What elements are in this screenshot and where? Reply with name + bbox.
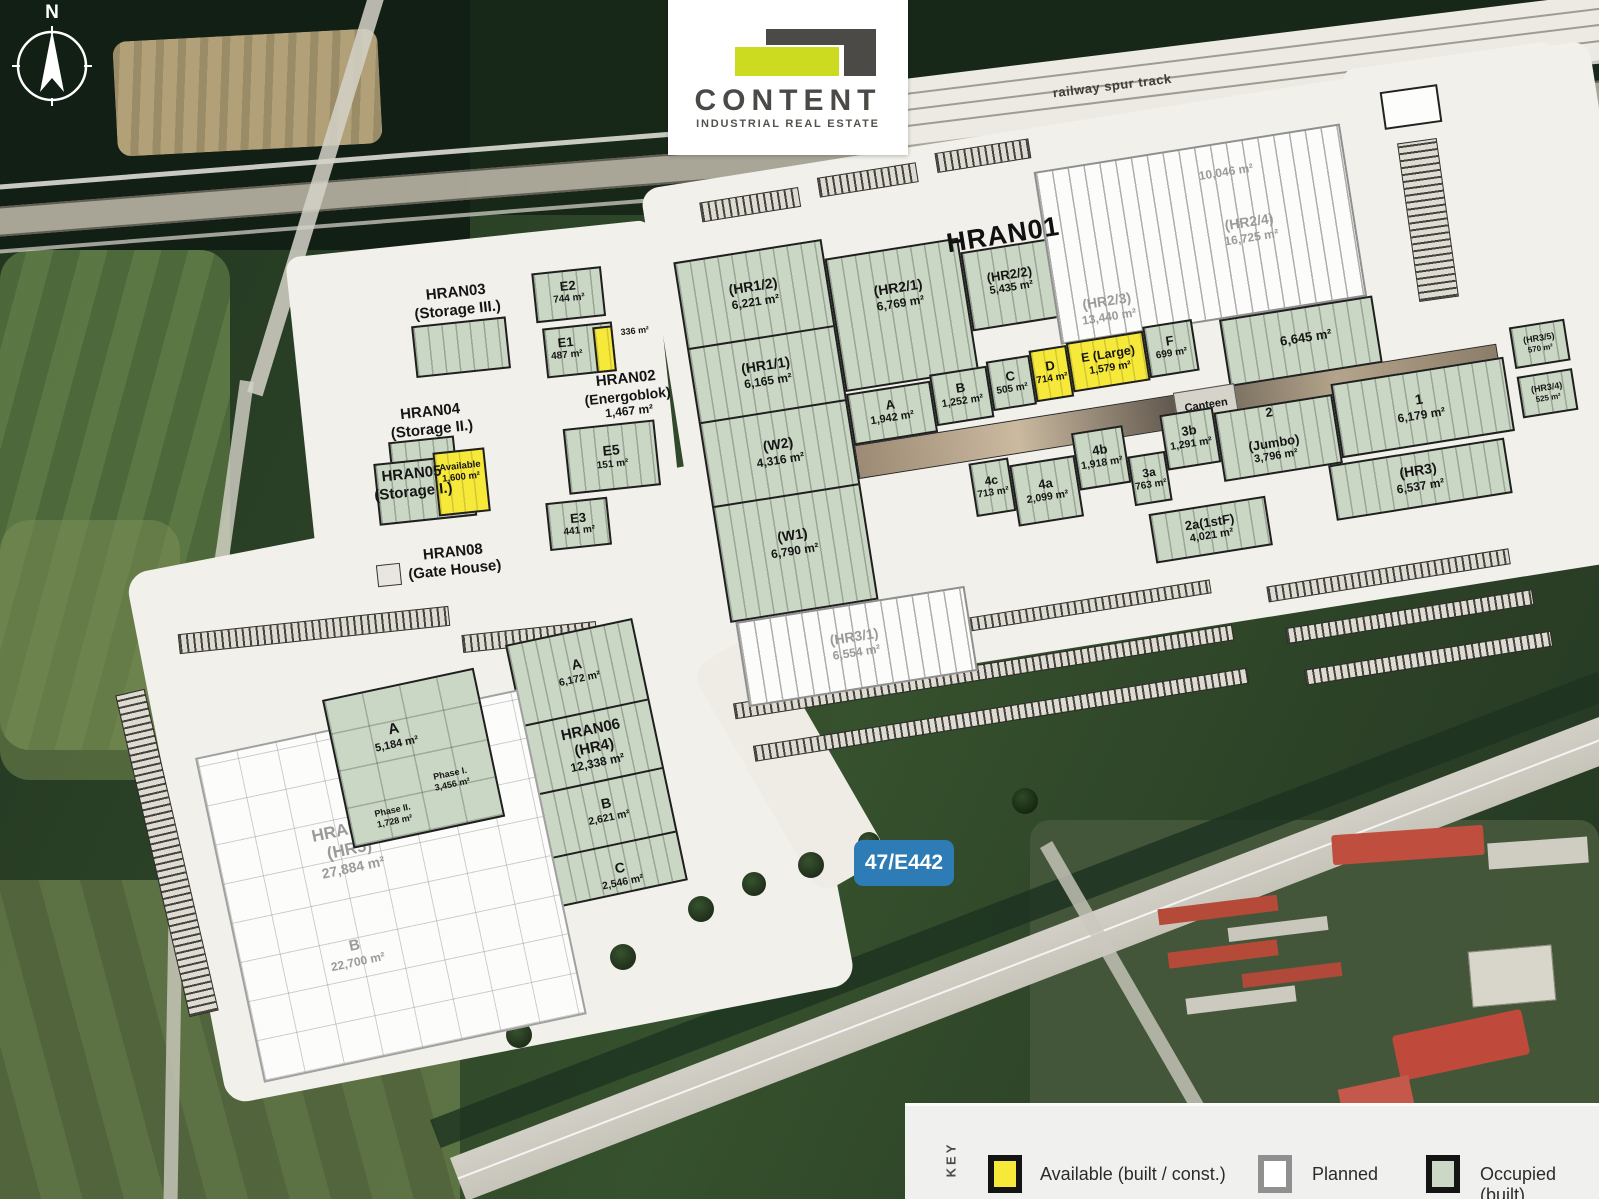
e2-label: E2744 m² [551, 277, 585, 307]
hran03-label: HRAN03(Storage III.) [412, 279, 502, 323]
hran06-a-label: A6,172 m² [554, 652, 601, 689]
legend-label-available: Available (built / const.) [1040, 1164, 1226, 1185]
hall-divider [552, 831, 676, 859]
hall-divider [701, 399, 846, 424]
unit-label-f: F699 m² [1153, 331, 1189, 363]
legend-swatch-occupied [1426, 1155, 1460, 1193]
legend-label-planned: Planned [1312, 1164, 1378, 1185]
hall-divider [539, 767, 663, 795]
e1-label: E1487 m² [549, 333, 583, 363]
e5-label: E5151 m² [595, 440, 629, 471]
parking-row [1266, 548, 1510, 602]
logo-mark-accent [735, 47, 839, 76]
parking-row [1304, 631, 1553, 686]
unit-label-2: 2 (Jumbo)3,796 m² [1243, 401, 1303, 467]
hran06-b-label: B2,621 m² [584, 791, 631, 828]
logo-mark-dark-leg [844, 42, 876, 76]
tree [798, 852, 824, 878]
unit-label-d: D714 m² [1033, 356, 1069, 388]
hran05-available-label: Available1,600 m² [439, 459, 482, 486]
parking-row [1285, 589, 1534, 644]
hran06-c-label: C2,546 m² [598, 855, 645, 892]
logo-title: CONTENT [668, 84, 908, 118]
compass: N [2, 0, 102, 120]
gate-house-building[interactable] [376, 563, 402, 587]
e1-available-label: 336 m² [620, 324, 649, 338]
hran04-label: HRAN04(Storage II.) [388, 399, 474, 443]
e3-label: E3441 m² [561, 509, 595, 539]
legend-label-occupied: Occupied (built) [1480, 1164, 1599, 1199]
road-sign: 47/E442 [854, 840, 954, 886]
building-e1-available[interactable] [592, 325, 617, 373]
legend-swatch-available [988, 1155, 1022, 1193]
site-plan-map: railway spur track HRAN03(Storage III.) … [0, 0, 1599, 1199]
hran07-a-label: A5,184 m² [370, 716, 419, 755]
legend-title: KEY [943, 1142, 958, 1178]
tree [688, 896, 714, 922]
hran08-label: HRAN08(Gate House) [406, 539, 503, 584]
unit-label-c: C505 m² [993, 366, 1029, 398]
tree [610, 944, 636, 970]
unit-label-4c: 4c713 m² [975, 471, 1010, 502]
compass-icon: N [2, 0, 102, 120]
satellite-building [1468, 944, 1557, 1007]
road-sign-label: 47/E442 [865, 851, 943, 875]
legend: KEY Available (built / const.) Planned O… [905, 1103, 1599, 1199]
hran07-b-label: B22,700 m² [326, 932, 386, 975]
tree [742, 872, 766, 896]
building-hran03[interactable] [411, 316, 511, 378]
logo: CONTENT INDUSTRIAL REAL ESTATE [668, 0, 908, 155]
hran07-phase2-label: Phase II.1,728 m² [374, 801, 414, 829]
unit-label-3a: 3a763 m² [1132, 463, 1167, 494]
hall-divider [689, 325, 834, 350]
hran06-label: HRAN06(HR4)12,338 m² [559, 715, 628, 776]
compass-north-label: N [45, 2, 59, 23]
legend-swatch-planned [1258, 1155, 1292, 1193]
building-hran07-a[interactable]: A5,184 m² Phase I.3,456 m² Phase II.1,72… [322, 668, 505, 849]
hran07-phase1-label: Phase I.3,456 m² [431, 765, 471, 793]
hall-divider [714, 483, 859, 508]
hran02-label: HRAN02(Energoblok)1,467 m² [582, 366, 673, 423]
building-hr21[interactable] [825, 238, 979, 392]
logo-tagline: INDUSTRIAL REAL ESTATE [668, 118, 908, 130]
